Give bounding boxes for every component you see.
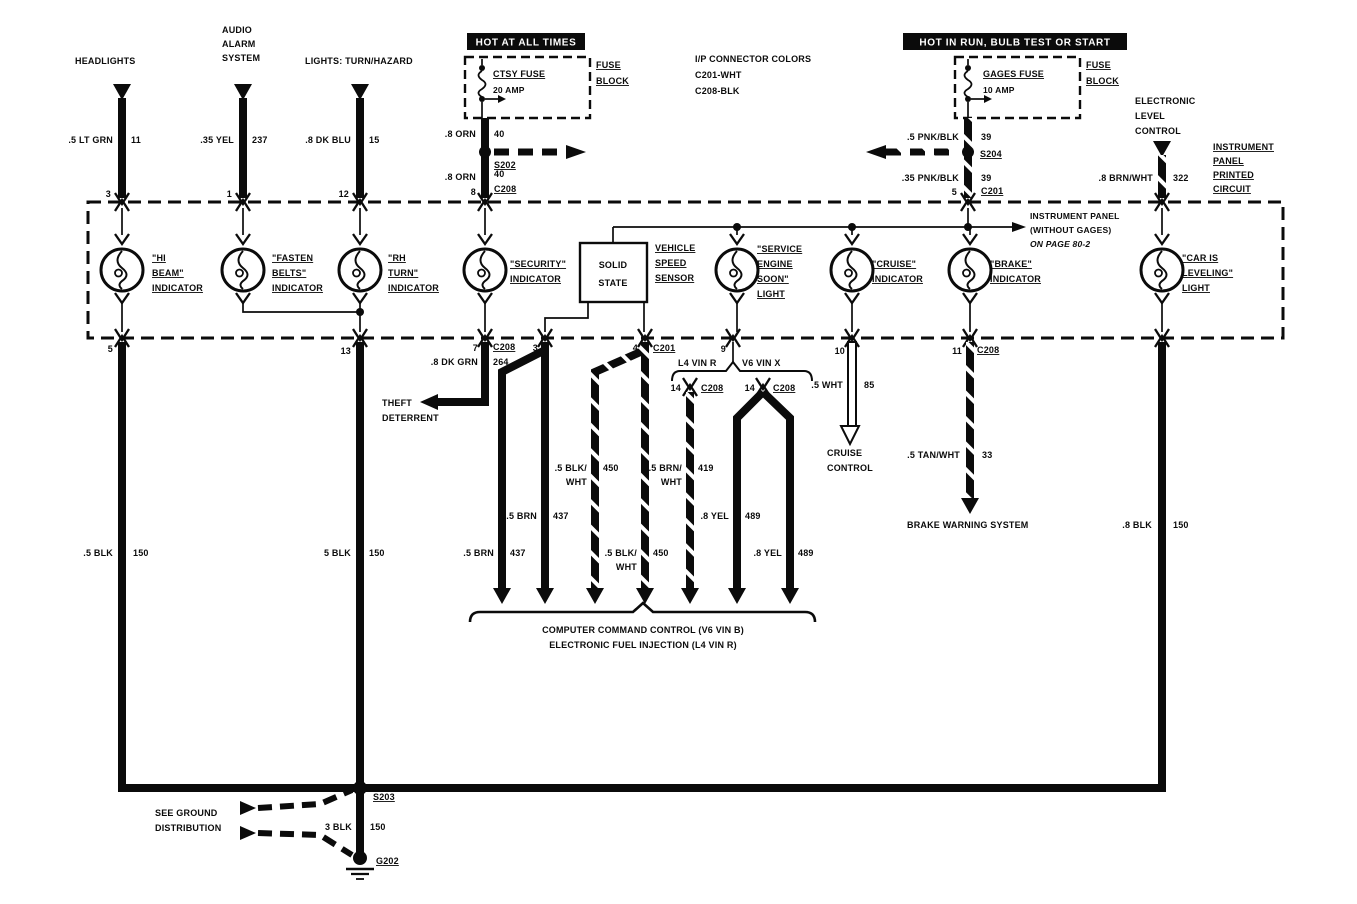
cruise-control-label-1: CRUISE [827,448,862,458]
ccc-w1-circuit: 437 [510,548,526,558]
ccc-w5-color-1: .5 BRN/ [649,463,683,473]
fasten-label-2: BELTS" [272,268,306,278]
headlights-wire-color: .5 LT GRN [68,135,113,145]
ctsy-connector-label: C208 [494,184,516,194]
ip-colors-c208: C208-BLK [695,86,740,96]
below-band: 5 13 7 C208 .8 DK GRN 264 3 4 C201 9 10 … [108,342,1189,650]
v6-vin-label: V6 VIN X [742,358,781,368]
rh-turn-label-2: TURN" [388,268,418,278]
ccc-w4-color-1: .5 BLK/ [605,548,638,558]
gages-fuse-assembly: HOT IN RUN, BULB TEST OR START GAGES FUS… [866,33,1127,198]
ccc-w3-color-2: WHT [566,477,587,487]
hi-beam-bulb-icon [101,234,143,303]
solid-state-text-2: STATE [598,278,627,288]
pin7-label: 7 [473,343,478,353]
brake-label-1: "BRAKE" [990,259,1032,269]
ccc-w5-color-2: WHT [661,477,682,487]
brake-bulb-icon [949,234,991,303]
theft-label-1: THEFT [382,398,412,408]
ccc-wire-6 [737,392,763,590]
ctsy-circuit-lower: 40 [494,169,504,179]
ccc-w3-circuit: 450 [603,463,619,473]
ccc-w4-circuit: 450 [653,548,669,558]
without-gages-note-1: INSTRUMENT PANEL [1030,211,1119,221]
see-ground-arrow-1-icon [240,801,256,815]
brake-warning-arrow-icon [961,498,979,514]
ccc-caption-1: COMPUTER COMMAND CONTROL (V6 VIN B) [542,625,744,635]
gages-fuse-block-2: BLOCK [1086,76,1119,86]
gages-circuit-lower: 39 [981,173,991,183]
ccc-w2-color: .5 BRN [506,511,537,521]
pin7-connector-label: C208 [493,342,515,352]
theft-label-2: DETERRENT [382,413,439,423]
pin14-l4-connector: C208 [701,383,723,393]
elc-label-1: ELECTRONIC [1135,96,1196,106]
wiring-diagram: HEADLIGHTS .5 LT GRN 11 3 AUDIO ALARM SY… [0,0,1357,904]
brake-warning-wire-color: .5 TAN/WHT [907,450,960,460]
bus-arrow-icon [1012,222,1026,232]
brake-label-2: INDICATOR [990,274,1041,284]
fasten-bottom-link [243,303,360,312]
cruise-control-label-2: CONTROL [827,463,873,473]
ip-connector-colors: I/P CONNECTOR COLORS C201-WHT C208-BLK [695,54,811,96]
ctsy-fuse-assembly: HOT AT ALL TIMES CTSY FUSE 20 AMP FUSE B… [445,33,630,198]
turn-hazard-label: LIGHTS: TURN/HAZARD [305,56,413,66]
security-label-1: "SECURITY" [510,259,566,269]
rh-turn-bulb-icon [339,234,381,303]
see-ground-label-1: SEE GROUND [155,808,218,818]
hi-beam-label-3: INDICATOR [152,283,203,293]
elc-circuit: 322 [1173,173,1189,183]
car-ground-wire-color: .8 BLK [1122,520,1152,530]
ground-mid-circuit: 150 [369,548,385,558]
turn-hazard-arrow-icon [351,84,369,100]
ip-colors-c201: C201-WHT [695,70,742,80]
gages-pin: 5 [952,187,957,197]
turn-hazard-pin: 12 [339,189,349,199]
ccc-brace [470,603,815,622]
ccc-w4-color-2: WHT [616,562,637,572]
audio-alarm-label-3: SYSTEM [222,53,260,63]
cruise-label-2: INDICATOR [872,274,923,284]
elc-label-2: LEVEL [1135,111,1165,121]
turn-hazard-circuit: 15 [369,135,379,145]
ctsy-wire-color-upper: .8 ORN [445,129,476,139]
g202-label: G202 [376,856,399,866]
gages-fuse-box [955,57,1080,118]
turn-hazard-wire-color: .8 DK BLU [305,135,351,145]
ccc-w6-circuit: 489 [745,511,761,521]
audio-alarm-wire-color: .35 YEL [200,135,234,145]
gages-fuse-name: GAGES FUSE [983,69,1044,79]
theft-wire-color: .8 DK GRN [431,357,478,367]
ccc-arrow-4-icon [636,588,654,604]
printed-circuit-4: CIRCUIT [1213,184,1251,194]
ground-section: .5 BLK 150 5 BLK 150 S203 3 BLK 150 G202… [83,342,1162,879]
gages-wire-color-lower: .35 PNK/BLK [902,173,960,183]
ground-left-circuit: 150 [133,548,149,558]
headlights-arrow-icon [113,84,131,100]
cruise-bulb-icon [831,234,873,303]
car-leveling-label-3: LIGHT [1182,283,1210,293]
hi-beam-label-2: BEAM" [152,268,184,278]
car-leveling-label-2: LEVELING" [1182,268,1233,278]
ctsy-circuit-upper: 40 [494,129,504,139]
pin14-v6-label: 14 [745,383,755,393]
s204-continuation-arrow-icon [866,145,886,159]
ccc-w7-color: .8 YEL [753,548,782,558]
rh-turn-label-3: INDICATOR [388,283,439,293]
security-label-2: INDICATOR [510,274,561,284]
audio-alarm-circuit: 237 [252,135,268,145]
pin14-v6-connector: C208 [773,383,795,393]
solid-state-left-leg [545,302,588,332]
ccc-arrow-7-icon [781,588,799,604]
ctsy-fuse-name: CTSY FUSE [493,69,545,79]
ctsy-fuse-rating: 20 AMP [493,85,525,95]
rh-turn-label-1: "RH [388,253,406,263]
pin14-l4-label: 14 [671,383,681,393]
s202-continuation-arrow-icon [566,145,586,159]
g202-dot [353,851,367,865]
fasten-label-1: "FASTEN [272,253,313,263]
pin11-label: 11 [952,346,962,356]
ccc-w1-color: .5 BRN [463,548,494,558]
ccc-w6-color: .8 YEL [700,511,729,521]
fasten-belts-bulb-icon [222,234,264,303]
see-ground-label-2: DISTRIBUTION [155,823,221,833]
security-bulb-icon [464,234,506,303]
ccc-arrow-2-icon [536,588,554,604]
vss-label-2: SPEED [655,258,687,268]
printed-circuit-2: PANEL [1213,156,1244,166]
ground-mid-wire-color: 5 BLK [324,548,351,558]
cruise-circuit: 85 [864,380,874,390]
audio-alarm-label-2: ALARM [222,39,256,49]
vss-label-1: VEHICLE [655,243,695,253]
audio-alarm-arrow-icon [234,84,252,100]
ctsy-pin: 8 [471,187,476,197]
instrument-panel-outline [88,202,1283,338]
elc-label-3: CONTROL [1135,126,1181,136]
ccc-caption-2: ELECTRONIC FUEL INJECTION (L4 VIN R) [549,640,737,650]
pin9-label: 9 [721,344,726,354]
cruise-control-wire [848,342,856,426]
solid-state-box [580,243,647,302]
printed-circuit-1: INSTRUMENT [1213,142,1274,152]
audio-alarm-label-1: AUDIO [222,25,252,35]
splice-s203-dot [353,781,367,795]
ground-left-wire-color: .5 BLK [83,548,113,558]
ccc-arrow-5-icon [681,588,699,604]
ground-splice-wire-color: 3 BLK [325,822,352,832]
pin5-label: 5 [108,344,113,354]
see-ground-dash-1 [258,790,352,808]
ses-label-3: SOON" [757,274,789,284]
ctsy-wire-color-lower: .8 ORN [445,172,476,182]
ccc-w2-circuit: 437 [553,511,569,521]
gages-fuse-rating: 10 AMP [983,85,1015,95]
without-gages-note-2: (WITHOUT GAGES) [1030,225,1111,235]
fasten-label-3: INDICATOR [272,283,323,293]
car-ground-circuit: 150 [1173,520,1189,530]
top-feeds: HEADLIGHTS .5 LT GRN 11 3 AUDIO ALARM SY… [68,25,1195,199]
headlights-label: HEADLIGHTS [75,56,136,66]
hot-in-run-text: HOT IN RUN, BULB TEST OR START [919,38,1110,49]
ccc-arrow-1-icon [493,588,511,604]
cruise-wire-color: .5 WHT [811,380,843,390]
see-ground-dash-2 [258,833,352,855]
ccc-wire-7 [763,392,790,590]
brake-warning-circuit: 33 [982,450,992,460]
printed-circuit-3: PRINTED [1213,170,1254,180]
cruise-control-arrow-icon [841,426,859,444]
ccc-arrow-6-icon [728,588,746,604]
hi-beam-label-1: "HI [152,253,166,263]
instrument-panel-band: INSTRUMENT PANEL (WITHOUT GAGES) ON PAGE… [88,193,1283,347]
printed-circuit-label: INSTRUMENT PANEL PRINTED CIRCUIT [1213,142,1274,194]
theft-deterrent-arrow-icon [420,394,438,410]
pin13-label: 13 [341,346,351,356]
splice-s204-dot [962,146,974,158]
ses-label-1: "SERVICE [757,244,802,254]
ccc-w3-color-1: .5 BLK/ [555,463,588,473]
ccc-w5-circuit: 419 [698,463,714,473]
ses-label-2: ENGINE [757,259,793,269]
cruise-label-1: "CRUISE" [872,259,916,269]
car-leveling-bulb-icon [1141,234,1183,303]
gages-fuse-block-1: FUSE [1086,60,1111,70]
audio-alarm-pin: 1 [227,189,232,199]
ccc-w7-circuit: 489 [798,548,814,558]
pin11-connector-label: C208 [977,345,999,355]
ctsy-fuse-block-1: FUSE [596,60,621,70]
s204-label: S204 [980,149,1002,159]
car-leveling-label-1: "CAR IS [1182,253,1218,263]
l4-vin-label: L4 VIN R [678,358,717,368]
ses-label-4: LIGHT [757,289,785,299]
ctsy-fuse-block-2: BLOCK [596,76,629,86]
pin10-label: 10 [835,346,845,356]
service-engine-bulb-icon [716,234,758,303]
see-ground-arrow-2-icon [240,826,256,840]
gages-circuit-upper: 39 [981,132,991,142]
splice-s202-dot [479,146,491,158]
vss-label-3: SENSOR [655,273,695,283]
wiring-diagram-page: HEADLIGHTS .5 LT GRN 11 3 AUDIO ALARM SY… [0,0,1357,904]
hot-at-all-times-text: HOT AT ALL TIMES [476,38,577,49]
solid-state-text-1: SOLID [599,260,628,270]
ccc-arrow-3-icon [586,588,604,604]
s203-label: S203 [373,792,395,802]
ip-colors-title: I/P CONNECTOR COLORS [695,54,811,64]
brake-warning-label: BRAKE WARNING SYSTEM [907,520,1029,530]
pin4-connector-label: C201 [653,343,675,353]
gages-wire-color-upper: .5 PNK/BLK [907,132,959,142]
elc-wire-color: .8 BRN/WHT [1099,173,1154,183]
ground-splice-circuit: 150 [370,822,386,832]
headlights-circuit: 11 [131,135,141,145]
gages-connector-label: C201 [981,186,1003,196]
without-gages-note-3: ON PAGE 80-2 [1030,239,1090,249]
headlights-pin: 3 [106,189,111,199]
elc-arrow-icon [1153,141,1171,157]
